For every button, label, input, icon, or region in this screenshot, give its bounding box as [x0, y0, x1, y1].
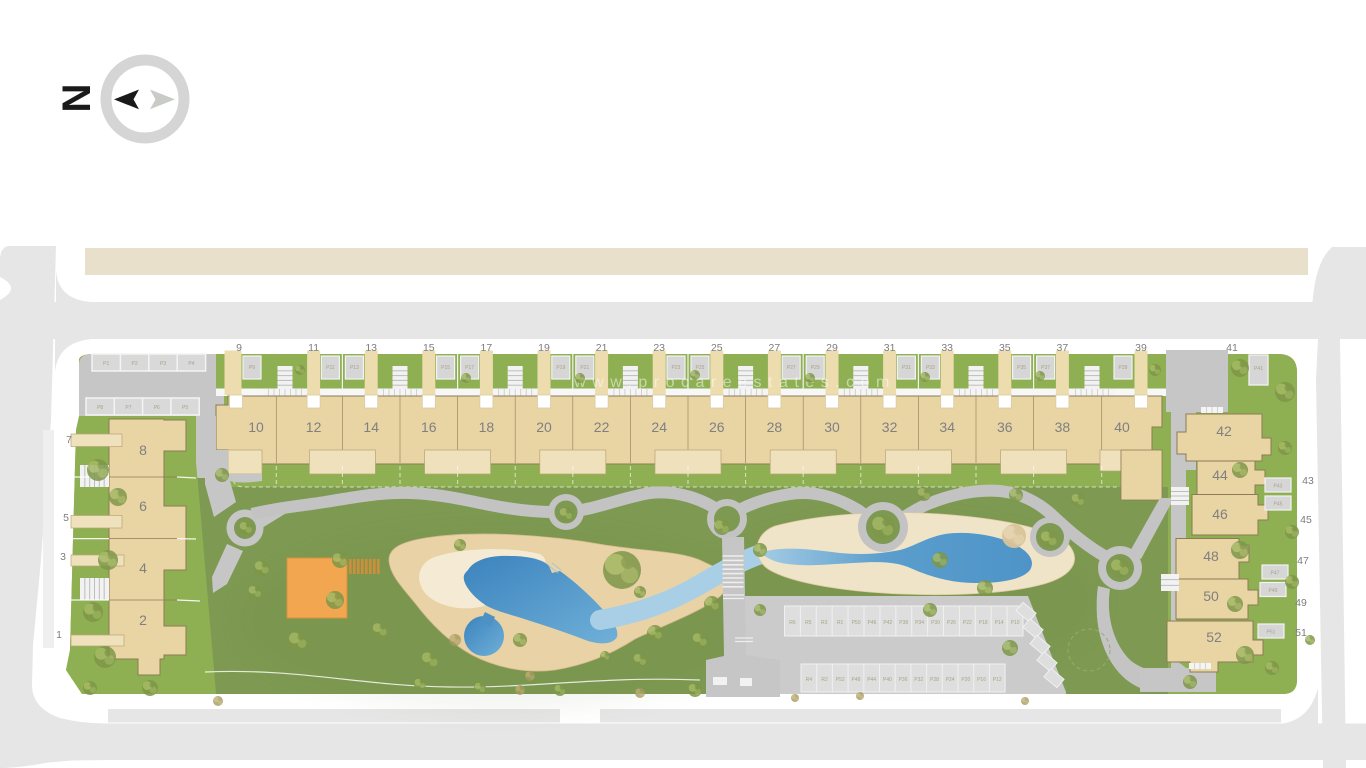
svg-text:P52: P52	[836, 677, 845, 683]
svg-text:P37: P37	[1041, 365, 1050, 371]
svg-text:P39: P39	[1119, 365, 1128, 371]
svg-text:P30: P30	[931, 620, 940, 626]
svg-text:5: 5	[63, 512, 69, 524]
svg-text:38: 38	[1055, 419, 1071, 435]
svg-text:36: 36	[997, 419, 1013, 435]
svg-text:P42: P42	[883, 620, 892, 626]
svg-text:48: 48	[1203, 548, 1219, 564]
svg-text:50: 50	[1203, 588, 1219, 604]
svg-text:P50: P50	[852, 620, 861, 626]
svg-text:P44: P44	[867, 677, 876, 683]
svg-text:P1: P1	[103, 361, 109, 367]
svg-text:P10: P10	[1011, 620, 1020, 626]
svg-text:16: 16	[421, 419, 437, 435]
svg-text:R5: R5	[805, 620, 812, 626]
svg-text:10: 10	[248, 419, 264, 435]
svg-text:23: 23	[653, 342, 665, 354]
svg-text:47: 47	[1297, 555, 1309, 567]
svg-text:37: 37	[1057, 342, 1069, 354]
svg-text:21: 21	[596, 342, 608, 354]
svg-text:P47: P47	[1271, 571, 1280, 577]
svg-text:18: 18	[479, 419, 495, 435]
svg-text:19: 19	[538, 342, 550, 354]
svg-text:32: 32	[882, 419, 898, 435]
svg-text:R2: R2	[821, 677, 828, 683]
svg-text:P41: P41	[1254, 366, 1263, 372]
svg-text:8: 8	[139, 442, 147, 458]
svg-text:51: 51	[1295, 627, 1307, 639]
svg-text:25: 25	[711, 342, 723, 354]
svg-text:29: 29	[826, 342, 838, 354]
svg-text:P9: P9	[249, 365, 255, 371]
svg-text:46: 46	[1212, 506, 1228, 522]
svg-text:34: 34	[939, 419, 955, 435]
svg-text:P23: P23	[672, 365, 681, 371]
svg-text:N: N	[55, 84, 99, 113]
svg-text:P5: P5	[182, 405, 188, 411]
svg-text:26: 26	[709, 419, 725, 435]
svg-text:R1: R1	[837, 620, 844, 626]
svg-text:3: 3	[60, 551, 66, 563]
svg-text:42: 42	[1216, 423, 1232, 439]
svg-text:P45: P45	[1274, 502, 1283, 508]
svg-text:49: 49	[1295, 597, 1307, 609]
svg-text:P11: P11	[326, 365, 335, 371]
svg-text:P43: P43	[1274, 484, 1283, 490]
svg-text:P7: P7	[125, 405, 131, 411]
svg-text:P12: P12	[993, 677, 1002, 683]
svg-text:P2: P2	[132, 361, 138, 367]
svg-text:44: 44	[1212, 467, 1228, 483]
svg-text:P27: P27	[787, 365, 796, 371]
svg-text:12: 12	[306, 419, 322, 435]
svg-text:45: 45	[1300, 514, 1312, 526]
svg-text:P51: P51	[1267, 630, 1276, 636]
svg-text:20: 20	[536, 419, 552, 435]
svg-text:P29: P29	[811, 365, 820, 371]
svg-text:P34: P34	[915, 620, 924, 626]
svg-text:6: 6	[139, 498, 147, 514]
svg-text:9: 9	[236, 342, 242, 354]
svg-text:P24: P24	[946, 677, 955, 683]
svg-text:39: 39	[1135, 342, 1147, 354]
svg-text:P48: P48	[851, 677, 860, 683]
svg-text:P46: P46	[867, 620, 876, 626]
svg-text:22: 22	[594, 419, 610, 435]
svg-text:P49: P49	[1269, 588, 1278, 594]
svg-text:1: 1	[56, 629, 62, 641]
svg-text:11: 11	[308, 342, 319, 354]
svg-text:P19: P19	[556, 365, 565, 371]
svg-text:P16: P16	[977, 677, 986, 683]
svg-text:4: 4	[139, 560, 147, 576]
svg-text:35: 35	[999, 342, 1011, 354]
svg-text:P35: P35	[1017, 365, 1026, 371]
svg-text:14: 14	[363, 419, 379, 435]
svg-text:P13: P13	[350, 365, 359, 371]
svg-text:P40: P40	[883, 677, 892, 683]
svg-text:P15: P15	[441, 365, 450, 371]
svg-text:31: 31	[884, 342, 896, 354]
svg-text:P14: P14	[995, 620, 1004, 626]
svg-text:www.procareestates.com: www.procareestates.com	[573, 374, 896, 391]
svg-text:P38: P38	[899, 620, 908, 626]
svg-text:40: 40	[1114, 419, 1130, 435]
svg-text:P32: P32	[914, 677, 923, 683]
svg-text:P18: P18	[979, 620, 988, 626]
svg-text:R3: R3	[821, 620, 828, 626]
svg-text:52: 52	[1206, 629, 1222, 645]
svg-text:17: 17	[481, 342, 493, 354]
svg-text:R4: R4	[806, 677, 813, 683]
svg-text:P22: P22	[963, 620, 972, 626]
svg-text:P20: P20	[961, 677, 970, 683]
svg-text:P26: P26	[947, 620, 956, 626]
svg-text:24: 24	[651, 419, 667, 435]
svg-text:P17: P17	[465, 365, 474, 371]
svg-text:P31: P31	[902, 365, 911, 371]
svg-text:R6: R6	[789, 620, 796, 626]
svg-text:P28: P28	[930, 677, 939, 683]
svg-text:28: 28	[767, 419, 783, 435]
svg-text:P33: P33	[926, 365, 935, 371]
svg-text:7: 7	[66, 434, 72, 446]
svg-text:P21: P21	[580, 365, 589, 371]
svg-text:P4: P4	[188, 361, 194, 367]
svg-text:43: 43	[1302, 475, 1314, 487]
svg-text:P3: P3	[160, 361, 166, 367]
svg-text:P25: P25	[696, 365, 705, 371]
svg-text:P6: P6	[154, 405, 160, 411]
svg-text:P8: P8	[97, 405, 103, 411]
svg-text:P36: P36	[899, 677, 908, 683]
svg-text:30: 30	[824, 419, 840, 435]
svg-text:13: 13	[365, 342, 377, 354]
svg-text:15: 15	[423, 342, 435, 354]
svg-text:27: 27	[769, 342, 781, 354]
svg-text:2: 2	[139, 612, 147, 628]
svg-text:33: 33	[941, 342, 953, 354]
